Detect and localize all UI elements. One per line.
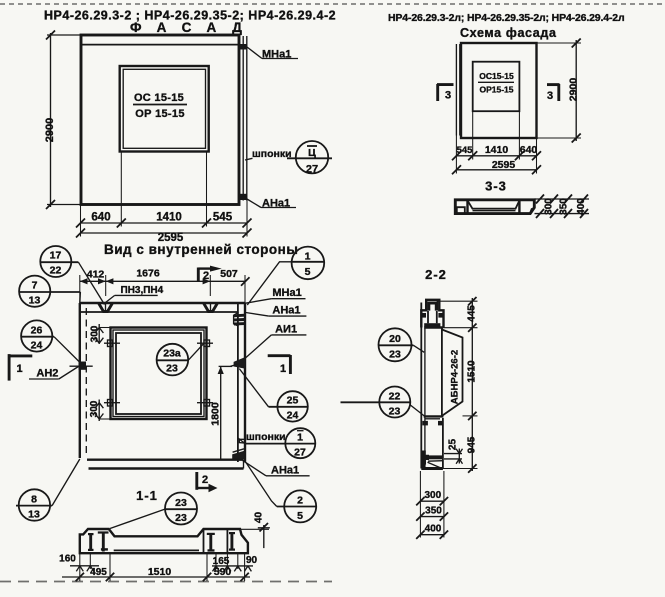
svg-text:160: 160 <box>59 554 76 565</box>
svg-text:8: 8 <box>31 494 37 506</box>
svg-text:945: 945 <box>467 436 478 453</box>
svg-text:ОС15-15: ОС15-15 <box>479 71 514 81</box>
svg-text:400: 400 <box>576 198 587 215</box>
svg-text:1410: 1410 <box>156 212 182 224</box>
svg-text:25: 25 <box>287 395 299 407</box>
svg-text:2900: 2900 <box>44 118 56 142</box>
svg-text:ФАСАД: ФАСАД <box>130 20 257 35</box>
svg-text:300: 300 <box>89 400 100 417</box>
svg-text:13: 13 <box>29 295 41 307</box>
svg-text:3-3: 3-3 <box>485 179 507 194</box>
svg-text:23а: 23а <box>163 348 181 360</box>
svg-text:шпонки: шпонки <box>252 148 292 160</box>
svg-text:400: 400 <box>425 524 442 535</box>
svg-text:545: 545 <box>457 145 474 156</box>
svg-text:2595: 2595 <box>492 159 516 171</box>
svg-text:Схема фасада: Схема фасада <box>460 26 557 40</box>
svg-text:22: 22 <box>389 391 401 403</box>
svg-text:350: 350 <box>425 506 442 517</box>
svg-text:23: 23 <box>175 512 187 524</box>
svg-text:ОР 15-15: ОР 15-15 <box>135 108 184 120</box>
svg-text:МНа1: МНа1 <box>272 287 301 299</box>
svg-text:27: 27 <box>306 164 318 176</box>
svg-text:17: 17 <box>50 250 62 262</box>
svg-text:507: 507 <box>220 268 238 280</box>
svg-text:20: 20 <box>389 333 401 345</box>
svg-text:5: 5 <box>297 510 303 522</box>
svg-text:590: 590 <box>214 566 232 578</box>
svg-text:412: 412 <box>87 269 105 281</box>
svg-text:640: 640 <box>91 212 110 224</box>
svg-text:5: 5 <box>305 266 311 278</box>
svg-text:13: 13 <box>28 509 40 521</box>
svg-text:АНа1: АНа1 <box>272 304 300 316</box>
svg-text:23: 23 <box>166 363 178 375</box>
svg-text:ОР15-15: ОР15-15 <box>479 85 513 95</box>
svg-text:1: 1 <box>16 363 22 375</box>
svg-text:300: 300 <box>90 325 101 342</box>
svg-text:1: 1 <box>297 432 303 444</box>
svg-text:545: 545 <box>213 212 233 224</box>
svg-text:23: 23 <box>389 406 401 418</box>
svg-text:23: 23 <box>389 349 401 361</box>
svg-text:2: 2 <box>297 495 303 507</box>
svg-text:Ц: Ц <box>308 147 316 159</box>
svg-text:ОС 15-15: ОС 15-15 <box>134 92 184 104</box>
svg-text:640: 640 <box>520 144 538 156</box>
svg-text:АБНР4-26-2: АБНР4-26-2 <box>450 350 461 404</box>
svg-text:26: 26 <box>31 325 43 337</box>
svg-text:2: 2 <box>203 270 209 282</box>
svg-text:25: 25 <box>448 439 459 451</box>
svg-text:ПН3,ПН4: ПН3,ПН4 <box>121 285 164 296</box>
svg-text:1: 1 <box>305 251 311 263</box>
svg-text:Вид с внутренней стороны: Вид с внутренней стороны <box>104 242 298 257</box>
svg-text:3: 3 <box>445 90 451 102</box>
svg-text:1410: 1410 <box>485 144 509 156</box>
svg-text:НР4-26.29.3-2л; НР4-26.29.35-2: НР4-26.29.3-2л; НР4-26.29.35-2л; НР4-26.… <box>388 12 625 24</box>
svg-text:1: 1 <box>280 363 286 375</box>
svg-text:7: 7 <box>32 280 38 292</box>
svg-text:АИ1: АИ1 <box>275 324 297 336</box>
svg-text:АНа1: АНа1 <box>271 465 299 477</box>
svg-text:350: 350 <box>559 198 570 215</box>
svg-text:3: 3 <box>547 90 553 102</box>
svg-text:1510: 1510 <box>467 360 478 383</box>
svg-text:1-1: 1-1 <box>136 488 158 503</box>
svg-text:22: 22 <box>50 265 62 277</box>
svg-text:1676: 1676 <box>136 268 160 280</box>
svg-text:24: 24 <box>31 340 43 352</box>
svg-text:300: 300 <box>424 490 441 501</box>
svg-text:2-2: 2-2 <box>425 267 447 282</box>
svg-text:300: 300 <box>544 198 555 215</box>
svg-text:495: 495 <box>90 567 107 578</box>
svg-text:АН2: АН2 <box>36 368 58 380</box>
svg-text:1510: 1510 <box>148 566 172 578</box>
svg-text:24: 24 <box>287 410 299 422</box>
svg-text:40: 40 <box>254 512 265 524</box>
svg-text:2900: 2900 <box>568 78 580 102</box>
svg-text:23: 23 <box>175 497 187 509</box>
svg-text:90: 90 <box>246 555 258 566</box>
svg-text:шпонки: шпонки <box>246 431 286 443</box>
svg-text:1800: 1800 <box>210 402 222 426</box>
svg-text:2: 2 <box>202 474 208 486</box>
svg-text:27: 27 <box>294 447 306 459</box>
svg-text:445: 445 <box>467 305 478 322</box>
